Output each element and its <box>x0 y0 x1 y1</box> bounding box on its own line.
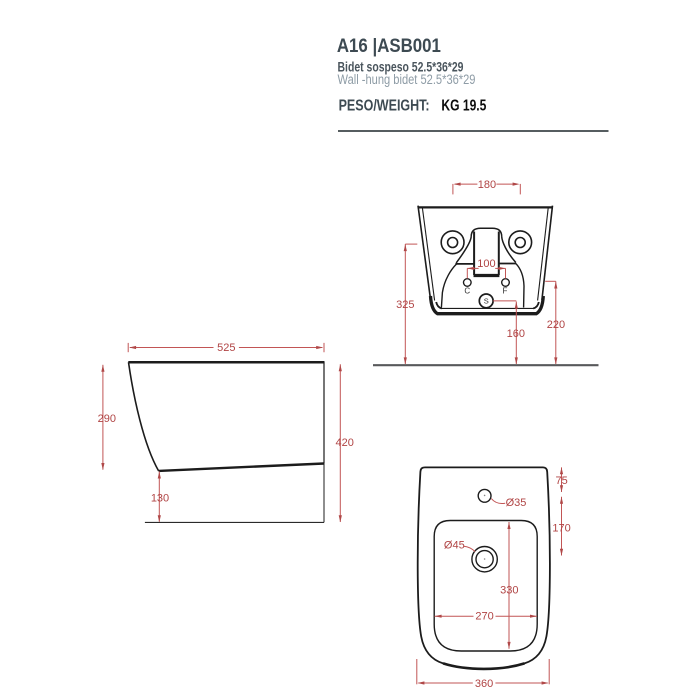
svg-text:A16 |ASB001: A16 |ASB001 <box>337 35 441 57</box>
svg-text:F: F <box>502 287 507 296</box>
svg-text:Ø45: Ø45 <box>444 540 465 552</box>
svg-text:525: 525 <box>217 342 235 354</box>
svg-text:360: 360 <box>475 678 493 690</box>
svg-text:160: 160 <box>507 328 525 340</box>
svg-text:100: 100 <box>477 258 495 270</box>
svg-text:130: 130 <box>151 493 169 505</box>
svg-text:270: 270 <box>475 611 493 623</box>
svg-text:330: 330 <box>500 584 518 596</box>
svg-text:Ø35: Ø35 <box>506 497 527 509</box>
svg-text:220: 220 <box>547 319 565 331</box>
svg-text:KG 19.5: KG 19.5 <box>441 97 486 114</box>
svg-text:290: 290 <box>98 413 116 425</box>
svg-text:PESO/WEIGHT:: PESO/WEIGHT: <box>339 97 430 114</box>
svg-text:170: 170 <box>552 523 570 535</box>
svg-text:Wall -hung bidet 52.5*36*29: Wall -hung bidet 52.5*36*29 <box>338 72 476 87</box>
svg-text:325: 325 <box>396 299 414 311</box>
svg-text:180: 180 <box>478 179 496 191</box>
svg-text:C: C <box>464 287 470 296</box>
svg-text:420: 420 <box>336 437 354 449</box>
svg-text:S: S <box>484 297 489 306</box>
svg-text:75: 75 <box>555 475 567 487</box>
